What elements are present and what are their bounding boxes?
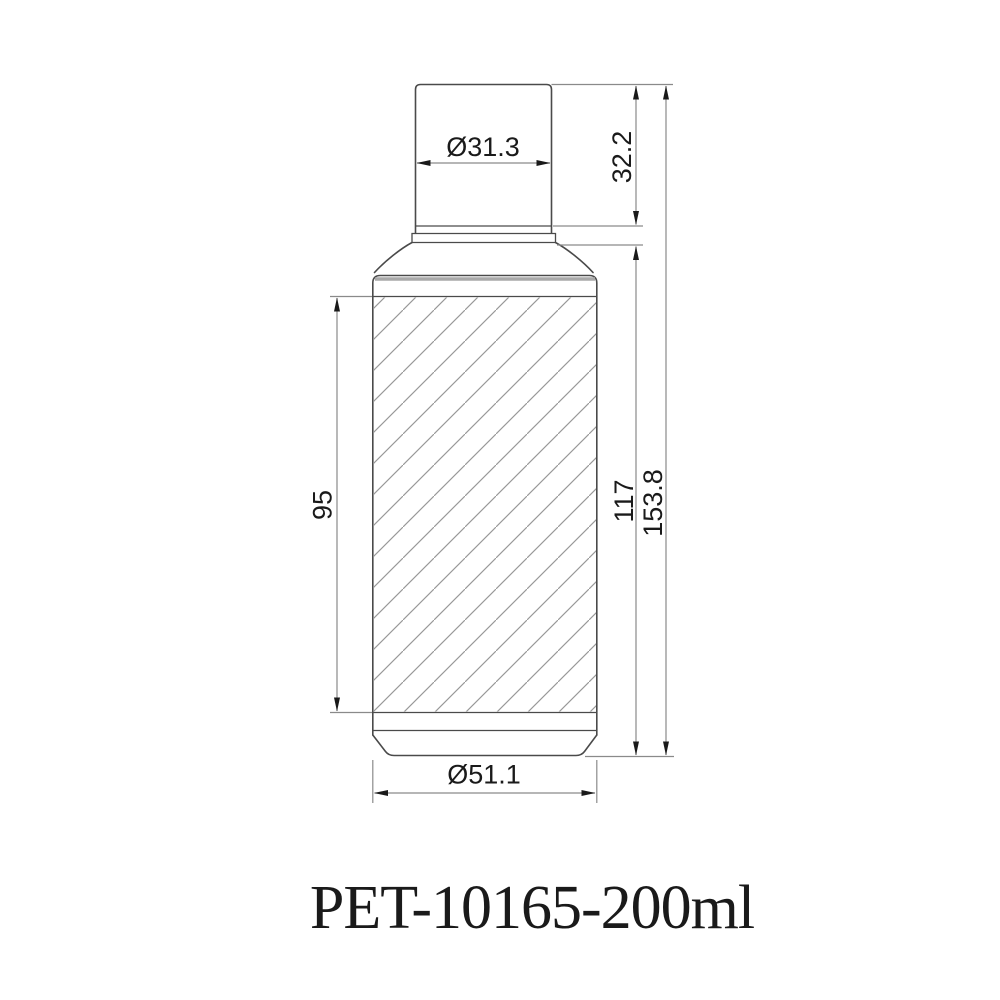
dim-base-diameter: Ø51.1	[375, 760, 596, 794]
dim-text-neck-diameter: Ø31.3	[446, 132, 520, 162]
drawing-sheet: Ø31.3 32.2 95 117 153.8	[0, 0, 1000, 1000]
dim-label-height: 95	[308, 298, 338, 711]
bottle-outline	[373, 85, 597, 756]
bottle-shoulder-left	[375, 243, 413, 273]
drawing-title: PET-10165-200ml	[310, 874, 754, 942]
bottle-shoulder-right	[556, 243, 594, 273]
dim-total-height: 153.8	[638, 86, 668, 755]
dim-text-label-height: 95	[308, 490, 338, 520]
dim-text-body-height: 117	[609, 479, 639, 522]
technical-drawing-canvas: Ø31.3 32.2 95 117 153.8	[0, 0, 1000, 1000]
neck-support-ring	[412, 234, 556, 243]
dim-text-neck-height: 32.2	[607, 131, 637, 184]
label-panel-hatch	[374, 298, 596, 712]
dim-text-base-diameter: Ø51.1	[447, 760, 521, 790]
bottle-base	[373, 735, 597, 756]
dim-text-total-height: 153.8	[638, 469, 668, 537]
dim-body-height: 117	[609, 247, 639, 756]
dim-neck-diameter: Ø31.3	[417, 132, 550, 163]
dim-neck-height: 32.2	[607, 86, 637, 225]
